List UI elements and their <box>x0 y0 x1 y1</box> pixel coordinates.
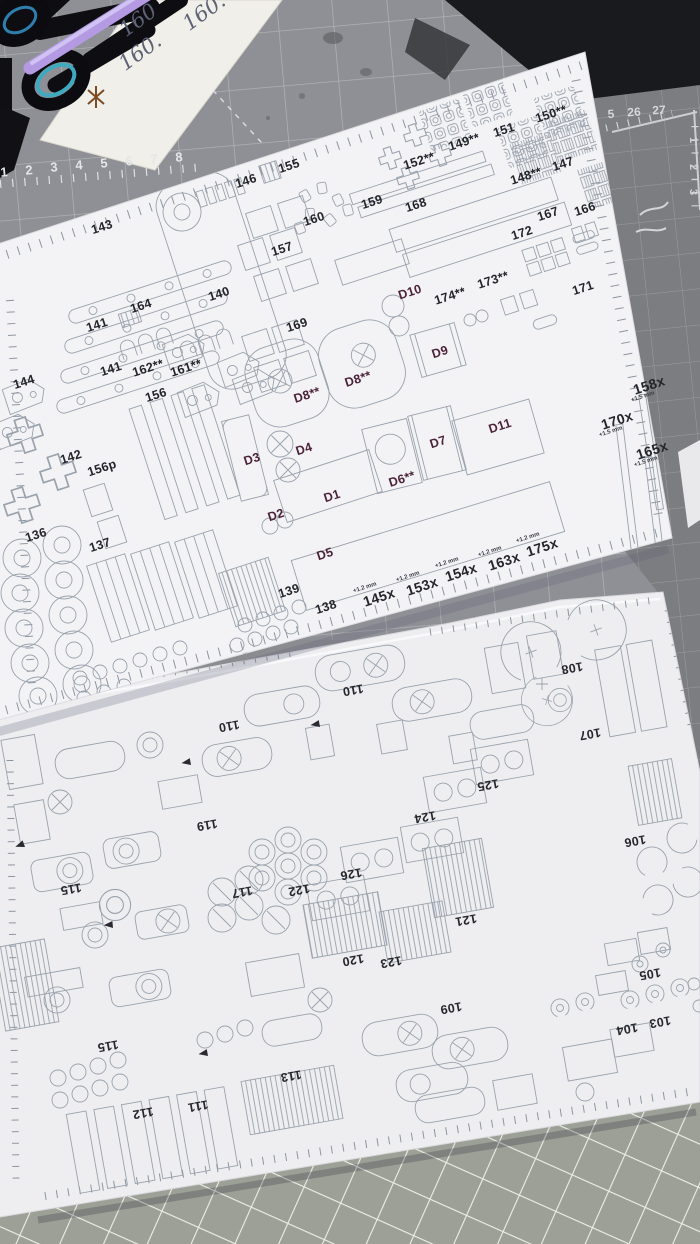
mat-number: 27 <box>652 103 666 118</box>
mat-number: 7 <box>150 151 159 167</box>
mat-number: 1 <box>0 164 8 180</box>
mat-number: 4 <box>75 157 84 173</box>
mat-number: 2 <box>687 164 699 171</box>
scene-art <box>0 0 700 1244</box>
mat-number: 8 <box>175 149 184 165</box>
mat-number: 3 <box>50 159 59 175</box>
mat-number: 1 <box>687 137 699 144</box>
mat-number: 5 <box>100 155 109 171</box>
photo-of-papercraft-sheets: 160 160. 160. 1 2 3 4 5 6 7 8 5 26 27 1 … <box>0 0 700 1244</box>
mat-number: 2 <box>25 162 34 178</box>
mat-number: 26 <box>627 105 641 120</box>
mat-number: 5 <box>607 107 614 121</box>
mat-number: 3 <box>687 189 699 196</box>
mat-number: 6 <box>125 153 134 169</box>
